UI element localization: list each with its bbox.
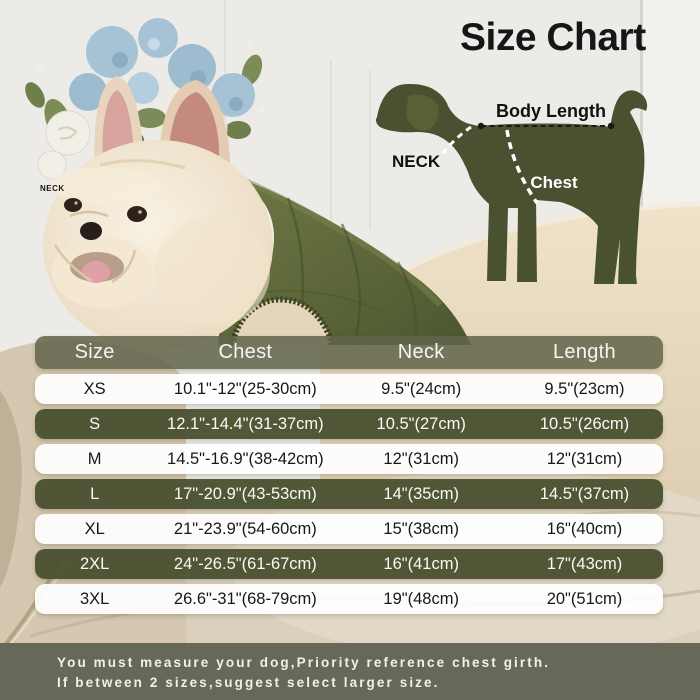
cell-chest: 21"-23.9"(54-60cm): [154, 520, 336, 539]
cell-neck: 14"(35cm): [336, 485, 506, 504]
cell-neck: 19"(48cm): [336, 590, 506, 609]
cell-chest: 12.1"-14.4"(31-37cm): [154, 415, 336, 434]
header-neck: Neck: [336, 341, 506, 364]
cell-neck: 10.5"(27cm): [336, 415, 506, 434]
cell-chest: 26.6"-31"(68-79cm): [154, 590, 336, 609]
table-row-2xl: 2XL24"-26.5"(61-67cm)16"(41cm)17"(43cm): [35, 549, 663, 579]
cell-length: 12"(31cm): [506, 450, 663, 469]
note-line-2: If between 2 sizes,suggest select larger…: [57, 673, 700, 693]
page-title: Size Chart: [460, 16, 700, 60]
size-table: Size Chest Neck Length XS10.1"-12"(25-30…: [35, 336, 663, 614]
header-length: Length: [506, 341, 663, 364]
note-line-1: You must measure your dog,Priority refer…: [57, 653, 700, 673]
table-rows: XS10.1"-12"(25-30cm)9.5"(24cm)9.5"(23cm)…: [35, 374, 663, 614]
table-header-row: Size Chest Neck Length: [35, 336, 663, 369]
cell-size: L: [35, 485, 154, 504]
cell-chest: 24"-26.5"(61-67cm): [154, 555, 336, 574]
cell-neck: 16"(41cm): [336, 555, 506, 574]
cell-neck: 12"(31cm): [336, 450, 506, 469]
header-size: Size: [35, 341, 154, 364]
cell-size: S: [35, 415, 154, 434]
cell-length: 14.5"(37cm): [506, 485, 663, 504]
size-chart-page: NECK Body Length NECK Chest Size Chart S…: [0, 0, 700, 700]
cell-size: 2XL: [35, 555, 154, 574]
cell-length: 16"(40cm): [506, 520, 663, 539]
cell-length: 9.5"(23cm): [506, 380, 663, 399]
cell-chest: 14.5"-16.9"(38-42cm): [154, 450, 336, 469]
cell-neck: 15"(38cm): [336, 520, 506, 539]
cell-chest: 10.1"-12"(25-30cm): [154, 380, 336, 399]
table-row-xl: XL21"-23.9"(54-60cm)15"(38cm)16"(40cm): [35, 514, 663, 544]
chest-label: Chest: [530, 173, 578, 192]
cell-size: XL: [35, 520, 154, 539]
neck-label: NECK: [392, 152, 441, 171]
body-length-label: Body Length: [496, 101, 606, 121]
header-chest: Chest: [154, 341, 336, 364]
table-row-m: M14.5"-16.9"(38-42cm)12"(31cm)12"(31cm): [35, 444, 663, 474]
cell-size: 3XL: [35, 590, 154, 609]
cell-length: 17"(43cm): [506, 555, 663, 574]
cell-length: 20"(51cm): [506, 590, 663, 609]
cell-size: M: [35, 450, 154, 469]
table-row-s: S12.1"-14.4"(31-37cm)10.5"(27cm)10.5"(26…: [35, 409, 663, 439]
cell-size: XS: [35, 380, 154, 399]
table-row-xs: XS10.1"-12"(25-30cm)9.5"(24cm)9.5"(23cm): [35, 374, 663, 404]
photo-neck-tag: NECK: [40, 184, 65, 193]
cell-neck: 9.5"(24cm): [336, 380, 506, 399]
table-row-l: L17"-20.9"(43-53cm)14"(35cm)14.5"(37cm): [35, 479, 663, 509]
note-band: You must measure your dog,Priority refer…: [0, 643, 700, 700]
cell-chest: 17"-20.9"(43-53cm): [154, 485, 336, 504]
table-row-3xl: 3XL26.6"-31"(68-79cm)19"(48cm)20"(51cm): [35, 584, 663, 614]
cell-length: 10.5"(26cm): [506, 415, 663, 434]
